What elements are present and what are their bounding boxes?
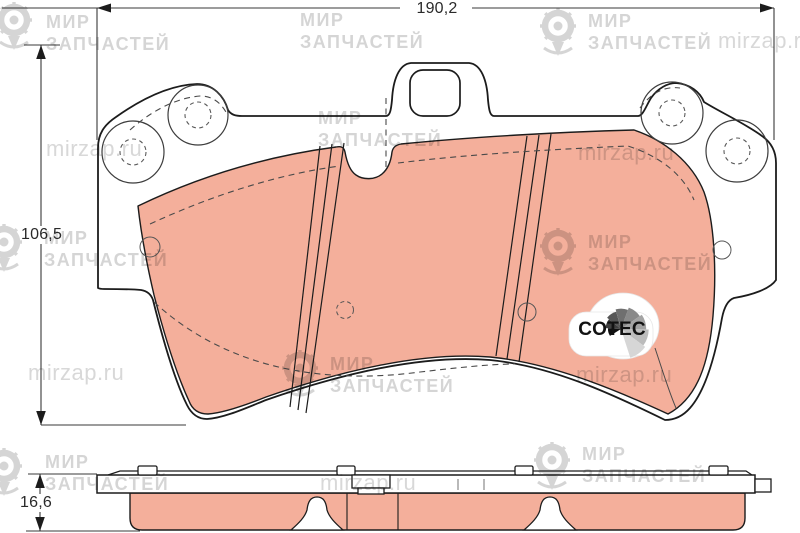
side-backplate [97,475,755,493]
cotec-logo-text: COTEC [577,319,647,341]
width-dimension-label: 190,2 [402,0,472,18]
brake-pad-drawing [0,0,800,533]
side-center-bracket [352,475,390,494]
height-dimension-label: 106,5 [18,226,65,244]
side-friction [130,493,745,530]
front-view [98,63,776,420]
side-backplate-step [755,479,771,492]
tab-hole [410,70,460,116]
thickness-dimension-label: 16,6 [17,494,55,512]
side-view [97,466,771,530]
technical-drawing-page: 190,2 106,5 16,6 COTEC МИРЗАПЧАСТЕЙМИРЗА… [0,0,800,533]
friction-material [138,130,715,414]
